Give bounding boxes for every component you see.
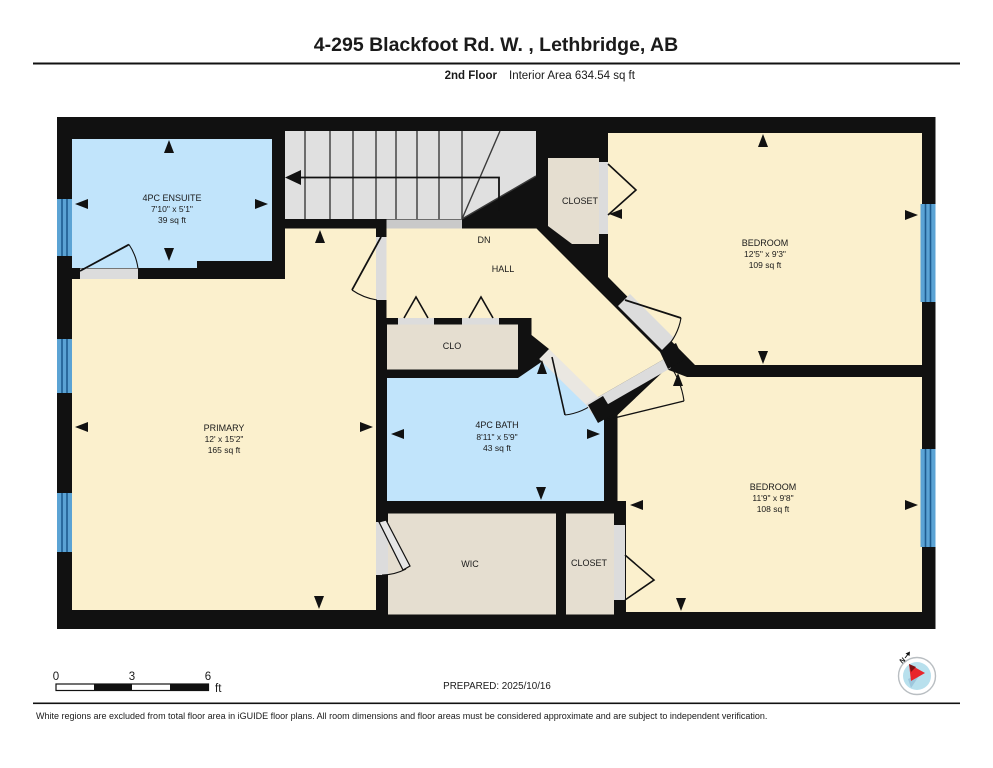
svg-text:11'9" x 9'8": 11'9" x 9'8" <box>752 493 793 503</box>
svg-text:4PC BATH: 4PC BATH <box>475 420 518 430</box>
svg-text:165 sq ft: 165 sq ft <box>208 445 241 455</box>
svg-text:CLOSET: CLOSET <box>562 196 599 206</box>
svg-text:6: 6 <box>205 671 211 683</box>
svg-text:Interior Area 634.54 sq ft: Interior Area 634.54 sq ft <box>509 70 636 82</box>
svg-text:WIC: WIC <box>461 559 479 569</box>
svg-text:BEDROOM: BEDROOM <box>750 482 797 492</box>
svg-text:CLO: CLO <box>443 341 462 351</box>
svg-text:39 sq ft: 39 sq ft <box>158 215 187 225</box>
svg-text:3: 3 <box>129 671 135 683</box>
svg-text:BEDROOM: BEDROOM <box>742 238 789 248</box>
svg-text:12'5" x 9'3": 12'5" x 9'3" <box>744 249 786 259</box>
svg-text:PRIMARY: PRIMARY <box>204 423 245 433</box>
svg-text:109 sq ft: 109 sq ft <box>749 260 782 270</box>
svg-text:108 sq ft: 108 sq ft <box>757 504 790 514</box>
svg-text:ft: ft <box>215 683 222 695</box>
svg-text:8'11" x 5'9": 8'11" x 5'9" <box>476 432 517 442</box>
svg-text:0: 0 <box>53 671 59 683</box>
svg-text:CLOSET: CLOSET <box>571 558 608 568</box>
svg-text:4-295 Blackfoot Rd. W. , Lethb: 4-295 Blackfoot Rd. W. , Lethbridge, AB <box>314 34 678 56</box>
svg-text:White regions are excluded fro: White regions are excluded from total fl… <box>36 711 767 721</box>
svg-text:4PC ENSUITE: 4PC ENSUITE <box>142 193 201 203</box>
svg-text:2nd Floor: 2nd Floor <box>445 70 498 82</box>
svg-text:12' x 15'2": 12' x 15'2" <box>205 434 244 444</box>
svg-text:HALL: HALL <box>492 264 515 274</box>
svg-text:7'10" x 5'1": 7'10" x 5'1" <box>151 204 193 214</box>
svg-text:43 sq ft: 43 sq ft <box>483 443 512 453</box>
svg-text:PREPARED: 2025/10/16: PREPARED: 2025/10/16 <box>443 681 551 692</box>
svg-text:DN: DN <box>478 235 491 245</box>
